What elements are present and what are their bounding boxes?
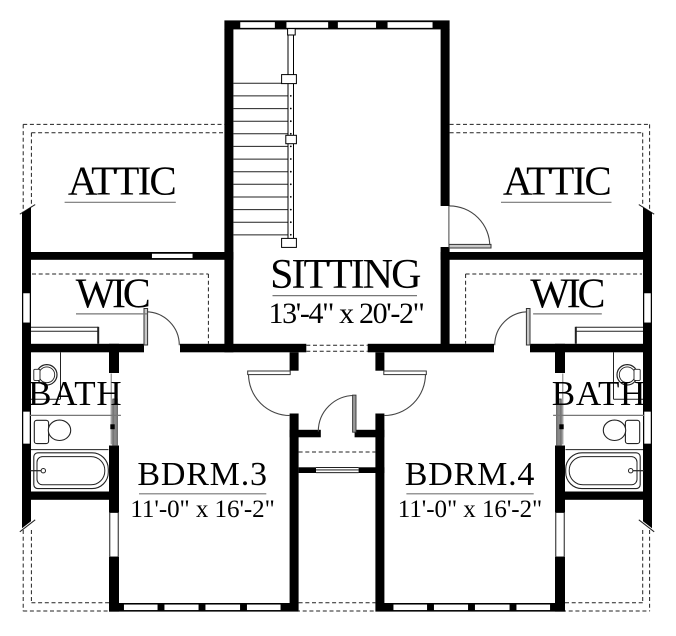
svg-text:WIC: WIC (76, 272, 149, 318)
svg-text:BDRM.3: BDRM.3 (137, 456, 267, 493)
svg-text:BATH: BATH (28, 374, 122, 413)
svg-text:ATTIC: ATTIC (503, 157, 611, 203)
svg-text:13'-4" x 20'-2": 13'-4" x 20'-2" (268, 297, 423, 330)
svg-text:BATH: BATH (552, 374, 646, 413)
svg-text:SITTING: SITTING (270, 252, 421, 298)
svg-text:ATTIC: ATTIC (68, 157, 176, 203)
svg-text:11'-0" x 16'-2": 11'-0" x 16'-2" (130, 496, 274, 523)
svg-text:BDRM.4: BDRM.4 (405, 456, 535, 493)
svg-text:WIC: WIC (530, 272, 603, 318)
svg-text:11'-0" x 16'-2": 11'-0" x 16'-2" (398, 496, 542, 523)
